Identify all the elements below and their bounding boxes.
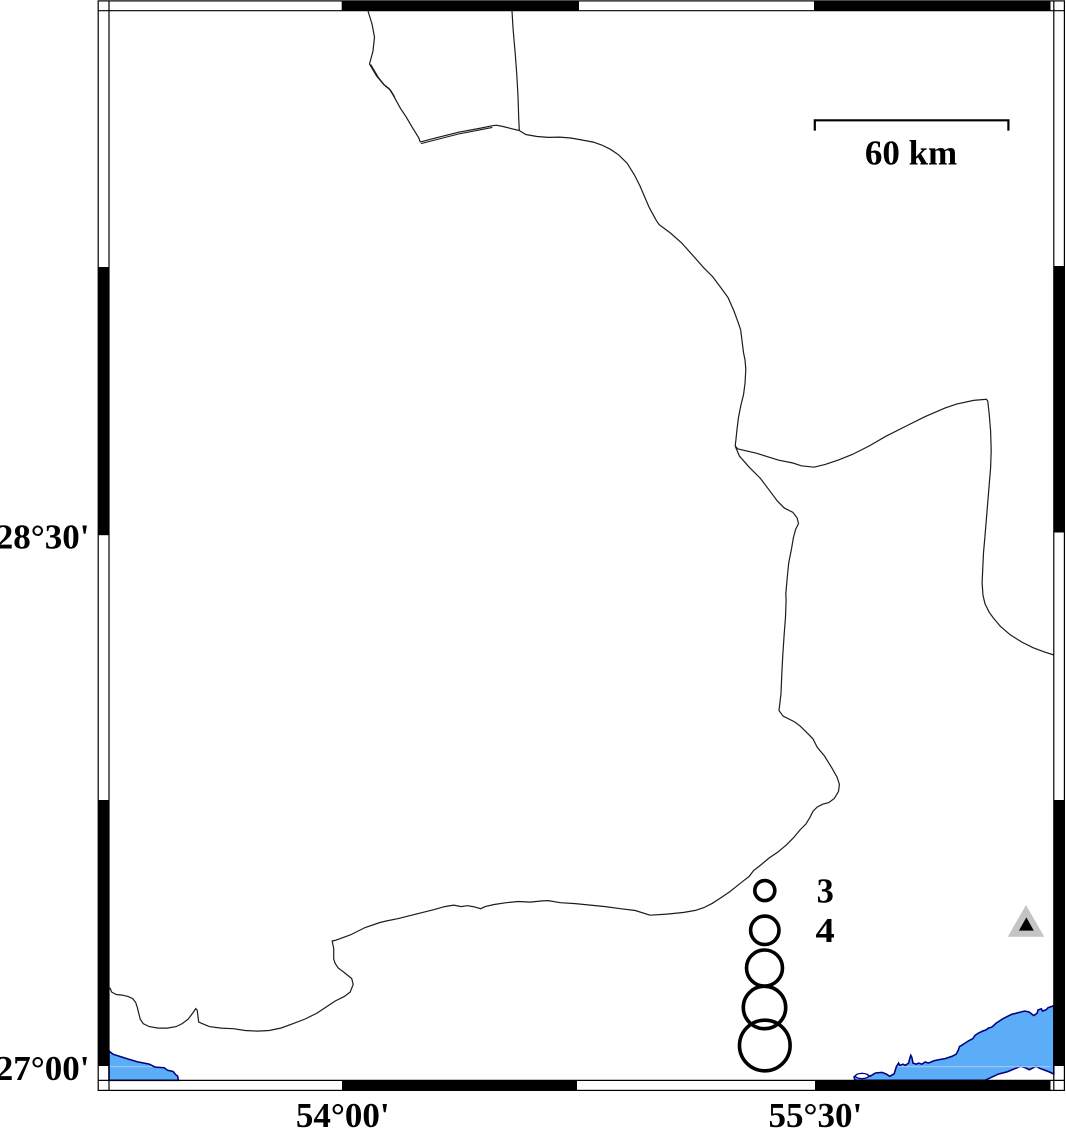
svg-text:27°00': 27°00' <box>0 1049 90 1088</box>
svg-text:60 km: 60 km <box>865 134 957 173</box>
svg-text:3: 3 <box>817 872 834 911</box>
svg-text:4: 4 <box>816 911 835 950</box>
svg-text:28°30': 28°30' <box>0 518 90 557</box>
svg-text:55°30': 55°30' <box>769 1096 863 1129</box>
svg-text:54°00': 54°00' <box>296 1096 390 1129</box>
